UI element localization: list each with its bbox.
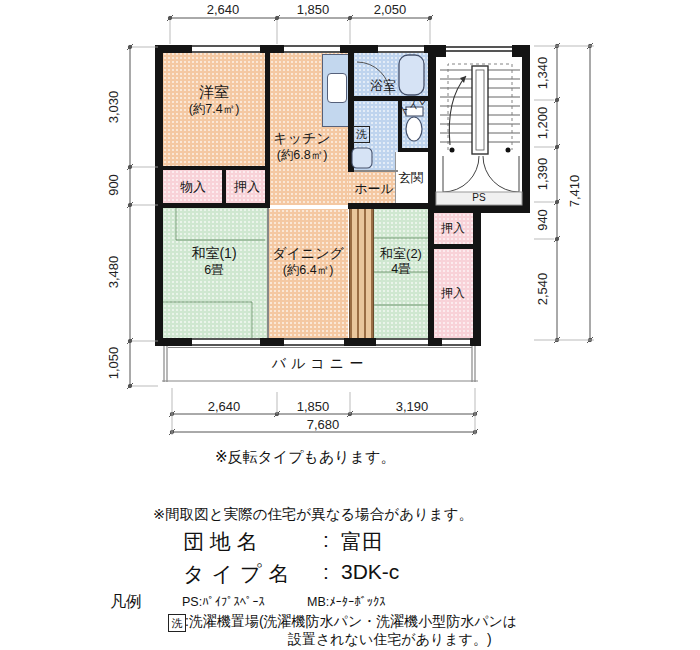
dim-bottom-1: 2,640 xyxy=(208,399,241,414)
wall xyxy=(428,213,434,338)
note-reversed: ※反転タイプもあります。 xyxy=(215,448,395,467)
wall xyxy=(155,45,163,346)
stairwell-window xyxy=(446,46,512,52)
room-name: キッチン xyxy=(273,130,330,148)
room-label-western: 洋室 (約7.4㎡) xyxy=(189,83,240,117)
laundry-mark: 洗 xyxy=(353,126,370,143)
dim-right-1: 1,340 xyxy=(535,57,550,90)
room-name: バルコニー xyxy=(272,355,368,373)
room-label-closet-right-bottom: 押入 xyxy=(441,286,465,301)
room-area: 6畳 xyxy=(191,263,236,279)
estate-name-row: 団 地 名 : 富田 xyxy=(183,528,383,556)
wood-strip xyxy=(349,209,374,338)
partition-line xyxy=(354,170,398,172)
window xyxy=(284,45,340,53)
room-label-closet-right-top: 押入 xyxy=(441,221,465,236)
type-name-colon: : xyxy=(311,560,341,588)
room-name: ホール xyxy=(354,181,394,197)
legend-laundry-mark: 洗 xyxy=(168,614,186,632)
kitchen-counter xyxy=(322,54,350,127)
room-label-entrance: 玄関 xyxy=(399,171,424,187)
wall xyxy=(348,203,434,209)
wall xyxy=(160,166,270,170)
dim-bottom-2: 1,850 xyxy=(297,399,330,414)
dim-right-3: 1,390 xyxy=(535,158,550,191)
window xyxy=(192,338,260,346)
wall xyxy=(265,52,270,208)
dim-bottom-3: 3,190 xyxy=(396,399,429,414)
wall xyxy=(222,166,226,207)
pipe-space-label: PS xyxy=(472,192,485,205)
room-label-japanese2: 和室(2) 4畳 xyxy=(380,246,422,278)
room-name: 押入 xyxy=(441,221,465,236)
room-name: 洋室 xyxy=(189,83,240,102)
room-name: 押入 xyxy=(234,179,260,195)
dim-right-4: 940 xyxy=(535,209,550,231)
wall xyxy=(428,45,446,57)
dim-left-1: 3,030 xyxy=(106,91,121,124)
balcony-label: バルコニー xyxy=(272,355,368,373)
wall xyxy=(473,213,481,338)
dim-right-5: 2,540 xyxy=(535,273,550,306)
room-area: 4畳 xyxy=(380,262,422,278)
dim-left-4: 1,050 xyxy=(106,347,121,380)
legend-mb-entry: MB:ﾒｰﾀｰﾎﾞｯｸｽ xyxy=(307,595,385,609)
window xyxy=(376,338,428,346)
note-disclaimer: ※間取図と実際の住宅が異なる場合があります。 xyxy=(153,505,473,524)
legend-ps-entry: PS:ﾊﾟｲﾌﾟｽﾍﾟｰｽ xyxy=(182,595,265,609)
room-name: 和室(1) xyxy=(191,245,236,263)
room-name: 物入 xyxy=(180,179,206,195)
dim-top-1: 2,640 xyxy=(207,2,240,17)
room-name: 浴室 xyxy=(370,78,396,94)
wall xyxy=(344,338,376,346)
dim-top-3: 2,050 xyxy=(374,2,407,17)
window xyxy=(284,338,344,346)
wall xyxy=(398,148,436,152)
dim-top-2: 1,850 xyxy=(297,2,330,17)
room-area: (約7.4㎡) xyxy=(189,102,240,118)
room-area: (約6.4㎡) xyxy=(272,263,344,279)
room-name: 玄関 xyxy=(399,171,424,187)
room-name: 和室(2) xyxy=(380,246,422,262)
dim-right-total: 7,410 xyxy=(567,175,582,208)
stairwell xyxy=(436,64,522,205)
wall xyxy=(470,338,481,346)
estate-name-colon: : xyxy=(311,528,341,556)
wall xyxy=(428,45,436,213)
wall xyxy=(522,45,530,213)
room-area: (約6.8㎡) xyxy=(273,148,330,164)
legend-laundry-entry: :洗濯機置場(洗濯機防水パン・洗濯機小型防水パンは xyxy=(185,613,517,631)
room-label-japanese1: 和室(1) 6畳 xyxy=(191,245,236,278)
wall xyxy=(260,45,284,53)
estate-name-label: 団 地 名 xyxy=(183,528,311,556)
wall xyxy=(260,338,284,346)
legend-laundry-entry2: 設置されない住宅があります。) xyxy=(288,631,492,649)
partition-line xyxy=(267,208,269,338)
room-label-hall: ホール xyxy=(354,181,394,197)
room-name: 押入 xyxy=(441,286,465,301)
room-label-closet-upper: 押入 xyxy=(234,179,260,195)
wall xyxy=(512,45,530,57)
room-label-dining: ダイニング (約6.4㎡) xyxy=(272,245,344,278)
window xyxy=(192,45,260,53)
room-name: ダイニング xyxy=(272,245,344,263)
wall xyxy=(160,203,270,208)
room-label-bath: 浴室 xyxy=(370,78,396,94)
room-label-kitchen: キッチン (約6.8㎡) xyxy=(273,130,330,163)
wall xyxy=(428,205,530,213)
dim-right-2: 1,200 xyxy=(535,107,550,140)
dim-left-2: 900 xyxy=(106,174,121,196)
wall xyxy=(155,338,192,346)
dim-bottom-total: 7,680 xyxy=(307,417,340,432)
wall xyxy=(428,338,442,346)
dim-left-3: 3,480 xyxy=(106,256,121,289)
legend-title: 凡例 xyxy=(110,592,142,613)
type-name-value: 3DK-c xyxy=(341,560,399,588)
room-label-storage: 物入 xyxy=(180,179,206,195)
kitchen-sink xyxy=(327,73,347,103)
wall xyxy=(348,52,354,172)
window xyxy=(378,45,424,53)
floorplan-page: 洋室 (約7.4㎡) キッチン (約6.8㎡) 浴室 トイレ 洗 ホール 玄関 … xyxy=(0,0,700,650)
wall xyxy=(340,45,378,53)
type-name-row: タイプ名 : 3DK-c xyxy=(183,560,399,588)
estate-name-value: 富田 xyxy=(341,528,383,556)
window xyxy=(442,338,470,346)
type-name-label: タイプ名 xyxy=(183,560,311,588)
wall xyxy=(432,244,475,249)
